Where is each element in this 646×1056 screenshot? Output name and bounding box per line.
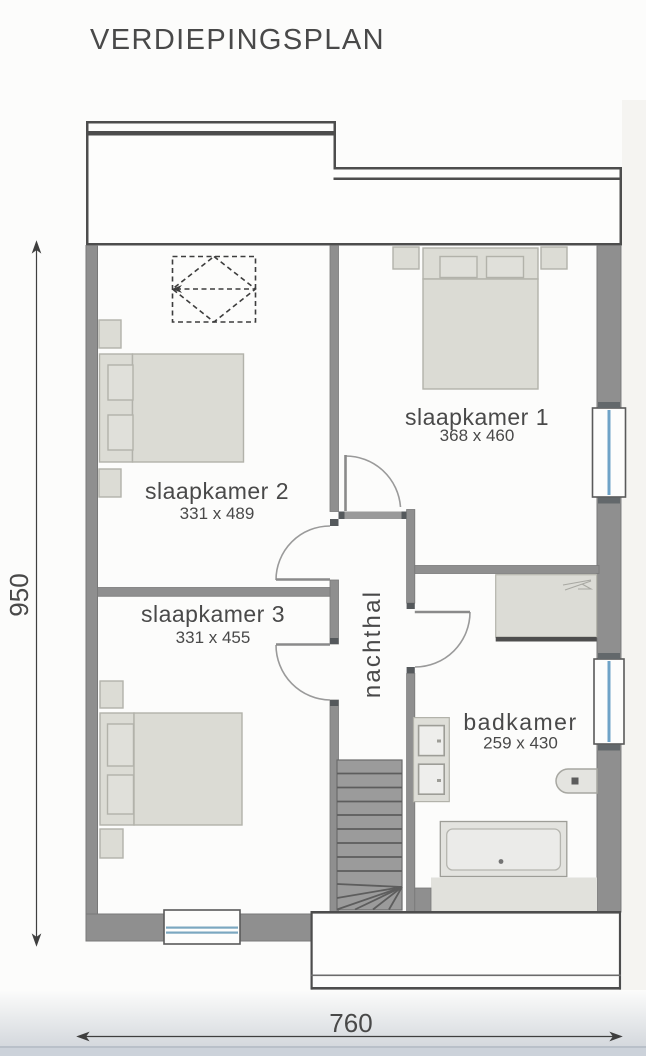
svg-text:259 x 430: 259 x 430 [483, 734, 558, 753]
svg-text:VERDIEPINGSPLAN: VERDIEPINGSPLAN [90, 24, 385, 56]
svg-text:950: 950 [4, 573, 34, 616]
svg-text:331 x 455: 331 x 455 [176, 628, 251, 647]
svg-text:760: 760 [329, 1008, 372, 1038]
svg-text:368 x 460: 368 x 460 [440, 426, 515, 445]
svg-text:slaapkamer 2: slaapkamer 2 [145, 478, 289, 504]
svg-text:badkamer: badkamer [463, 709, 577, 735]
svg-text:nachthal: nachthal [359, 590, 386, 698]
svg-text:331 x 489: 331 x 489 [180, 504, 255, 523]
svg-text:slaapkamer 3: slaapkamer 3 [141, 601, 285, 627]
